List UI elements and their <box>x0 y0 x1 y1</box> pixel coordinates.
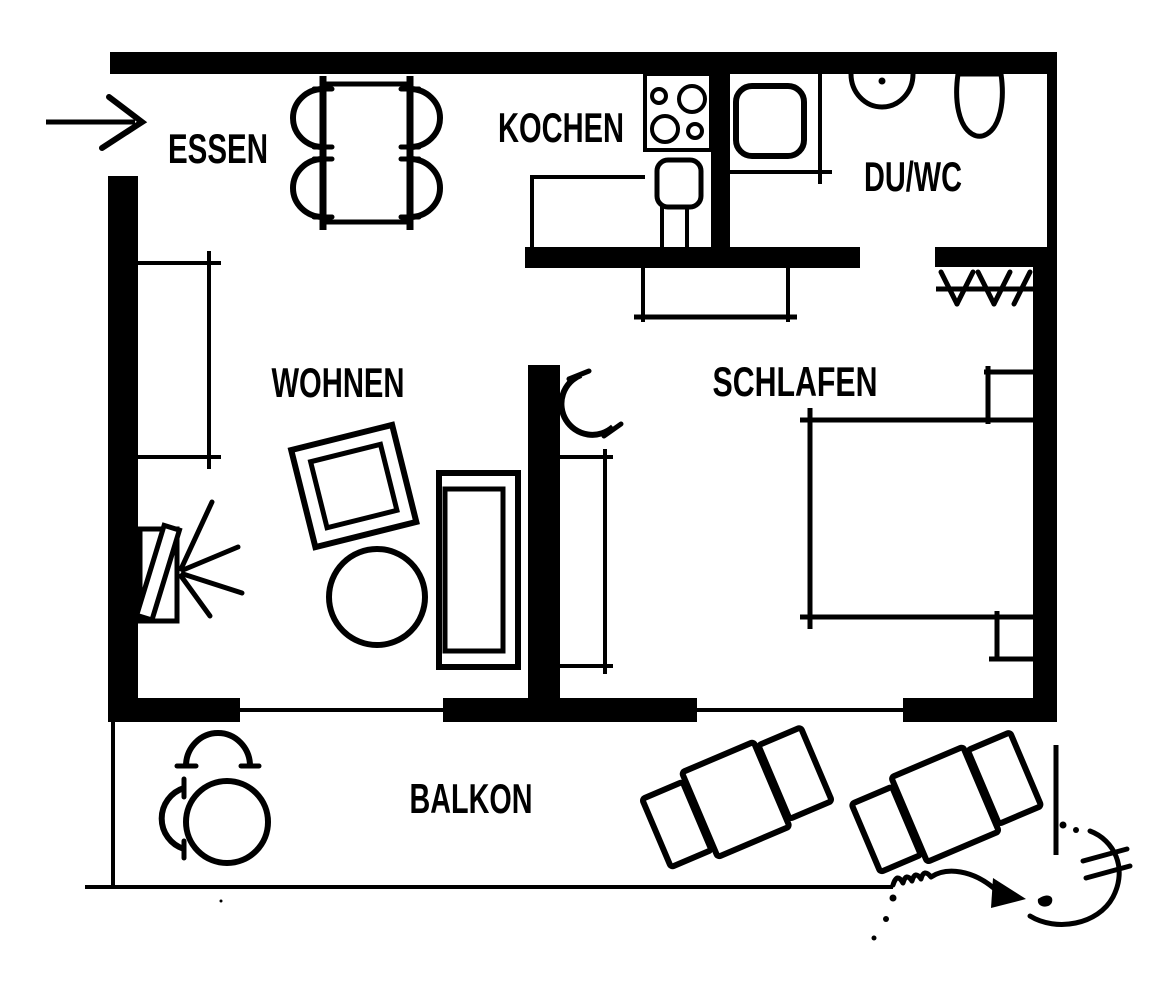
toilet <box>957 74 1003 136</box>
dining-area <box>293 76 440 230</box>
balcony <box>85 722 1130 941</box>
wall-bottom-seg1 <box>108 698 240 722</box>
coat-rack <box>936 272 1033 304</box>
chair-arc <box>293 159 323 217</box>
room-label-balkon: BALKON <box>410 775 533 822</box>
wall-kitchen-divider <box>711 70 730 268</box>
doodle-dot <box>1060 822 1067 829</box>
room-label-wohnen: WOHNEN <box>272 359 405 406</box>
wall-right-duwc <box>1047 68 1057 250</box>
dining-table <box>323 84 410 222</box>
sun-lounger-left <box>639 723 835 876</box>
wall-living-divider <box>528 365 560 700</box>
kitchen <box>532 74 711 248</box>
burner <box>679 86 705 112</box>
wardrobe <box>553 449 613 674</box>
doodle-dot <box>883 916 889 922</box>
door-swing-arc <box>561 371 621 436</box>
living-room <box>137 251 518 667</box>
armchair-outer <box>291 425 416 547</box>
shower <box>727 70 832 184</box>
burner <box>652 116 678 142</box>
burner <box>688 124 702 138</box>
chair-arc <box>410 159 440 217</box>
balcony-table <box>186 781 268 863</box>
round-coffee-table <box>329 549 425 645</box>
doodle-hash <box>1083 849 1127 861</box>
burner <box>652 89 666 103</box>
washbasin-drain <box>879 78 886 85</box>
chair-arc <box>410 89 440 147</box>
wall-right <box>1033 247 1057 722</box>
sun-lounger-right <box>848 728 1044 881</box>
wall-left <box>108 176 138 722</box>
wall-bottom-seg2 <box>443 698 697 722</box>
armchair <box>291 425 416 547</box>
wall-bottom-seg3 <box>903 698 1057 722</box>
entrance-arrow <box>46 97 142 148</box>
doodle-hash <box>1086 866 1130 878</box>
wall-duwc-bottom <box>935 247 1053 267</box>
sofa <box>439 473 518 667</box>
tv-with-viewing-rays <box>137 502 242 621</box>
doodle-wavy-arrow-line <box>893 871 997 891</box>
room-label-kochen: KOCHEN <box>498 104 624 151</box>
kitchen-counter <box>532 177 645 248</box>
doodle-arrowhead <box>991 878 1026 908</box>
doodle-dot <box>1073 827 1079 833</box>
bedroom <box>553 366 1035 674</box>
shower-tray <box>736 86 804 156</box>
wall-kitchen-bottom <box>525 247 860 268</box>
chair-arc <box>293 89 323 147</box>
doodle-hook-curve <box>1030 831 1119 924</box>
sideboard <box>137 251 221 469</box>
balcony-chair-top <box>186 733 250 766</box>
doodle-blob <box>1038 895 1053 906</box>
ink-speck <box>220 900 223 903</box>
room-label-essen: ESSEN <box>168 125 268 172</box>
doodle-dot <box>890 895 897 902</box>
double-bed <box>800 408 1035 629</box>
room-label-duwc: DU/WC <box>864 153 962 200</box>
balcony-table-set <box>162 733 268 863</box>
floor-plan-canvas: ESSEN KOCHEN DU/WC WOHNEN SCHLAFEN BALKO… <box>0 0 1163 1000</box>
balcony-chair-left <box>162 788 184 849</box>
nightstand-top <box>984 366 1035 424</box>
wall-top <box>110 52 1057 74</box>
room-label-schlafen: SCHLAFEN <box>713 358 878 405</box>
sofa-outer <box>439 473 518 667</box>
doodle-dot <box>872 936 877 941</box>
kitchen-sink <box>657 160 701 207</box>
hall-dresser <box>634 268 797 322</box>
